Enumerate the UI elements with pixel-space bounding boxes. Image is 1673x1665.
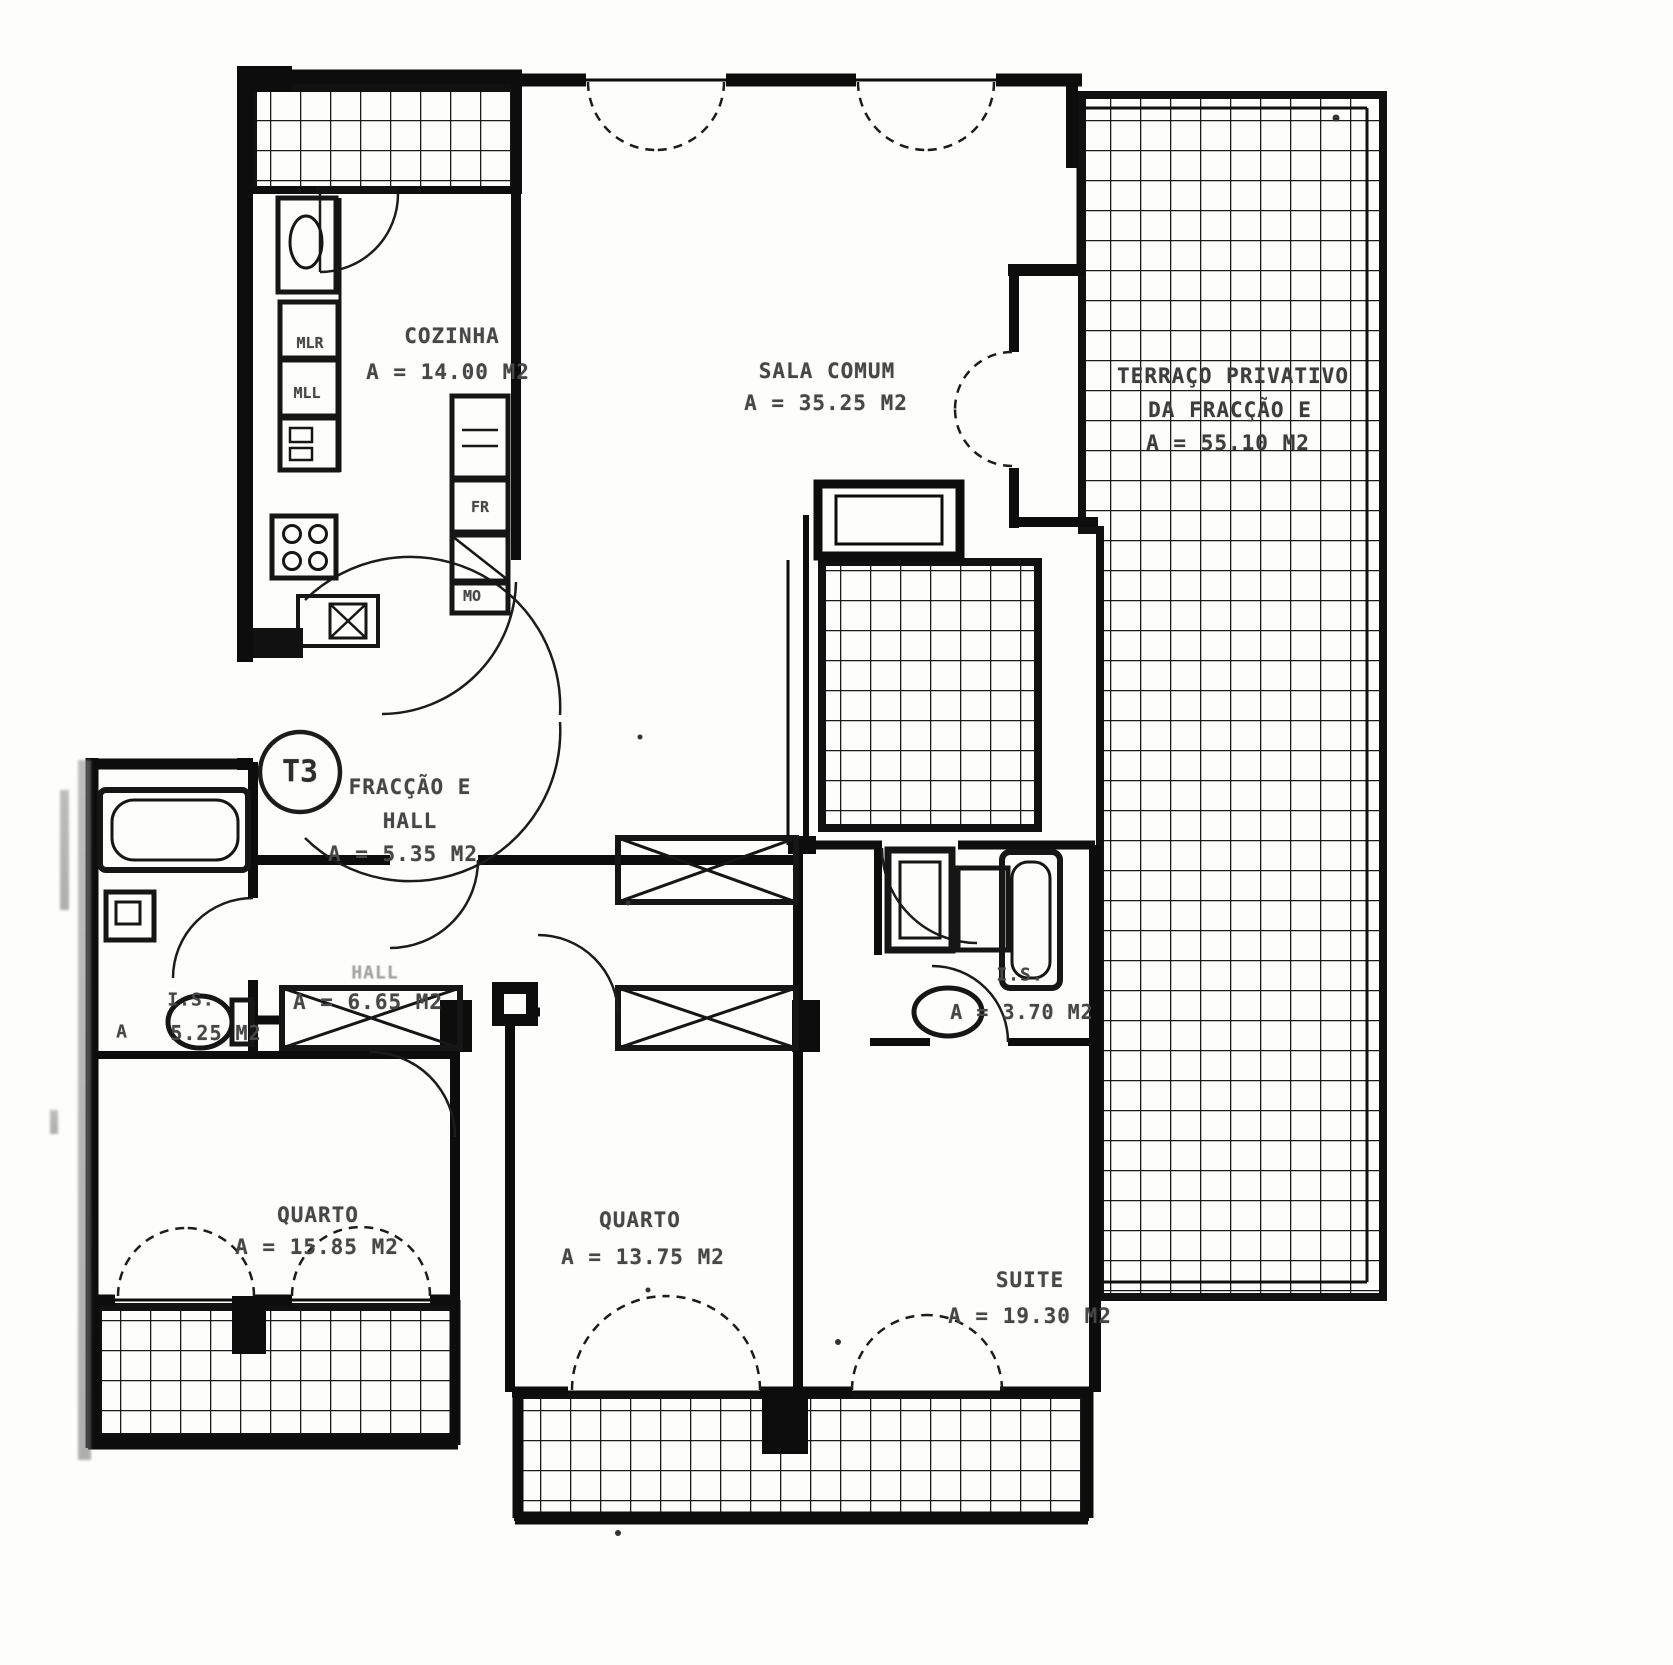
room-area-fraccao-hall: A = 5.35 M2 <box>328 842 478 866</box>
scan-smudge-left-2 <box>60 790 69 910</box>
appliance-label-mlr: MLR <box>296 334 323 352</box>
room-area-prefix-is-left: A <box>116 1022 128 1043</box>
floor-plan-page: COZINHA A = 14.00 M2 SALA COMUM A = 35.2… <box>0 0 1673 1665</box>
room-area-is-suite: A = 3.70 M2 <box>950 1000 1093 1024</box>
appliance-label-mo: MO <box>463 587 481 605</box>
floor-plan-drawing <box>0 0 1673 1665</box>
room-label-is-left: I.S. <box>167 990 214 1011</box>
room-area-hall: A = 6.65 M2 <box>293 990 443 1014</box>
room-label-quarto-1: QUARTO <box>277 1203 359 1227</box>
room-label-quarto-2: QUARTO <box>599 1208 681 1232</box>
room-area-is-left: 5.25 M2 <box>170 1021 261 1045</box>
room-label-is-suite: I.S. <box>996 965 1043 986</box>
room-label-terraco-line1: TERRAÇO PRIVATIVO <box>1117 364 1349 388</box>
room-label-suite: SUITE <box>996 1268 1064 1292</box>
room-area-sala-comum: A = 35.25 M2 <box>744 391 908 415</box>
terrace-grid <box>1082 95 1383 1297</box>
room-label-cozinha: COZINHA <box>404 324 500 348</box>
room-area-quarto-1: A = 15.85 M2 <box>235 1235 399 1259</box>
room-area-terraco: A = 55.10 M2 <box>1146 431 1310 455</box>
unit-type-badge: T3 <box>282 755 318 790</box>
room-area-cozinha: A = 14.00 M2 <box>366 360 530 384</box>
kitchen-balcony-grid <box>253 88 518 190</box>
scan-smudge-left <box>78 760 91 1460</box>
appliance-label-fr: FR <box>471 498 489 516</box>
scan-smudge-left-3 <box>50 1110 58 1134</box>
room-area-suite: A = 19.30 M2 <box>948 1304 1112 1328</box>
room-label-fraccao-line2: HALL <box>383 809 438 833</box>
appliance-label-mll: MLL <box>293 384 320 402</box>
room-label-sala-comum: SALA COMUM <box>759 359 895 383</box>
left-balcony-grid <box>98 1307 455 1437</box>
room-label-fraccao-line1: FRACÇÃO E <box>349 775 472 799</box>
room-label-hall: HALL <box>351 963 398 984</box>
patio-grid <box>822 562 1038 828</box>
room-label-terraco-line2: DA FRACÇÃO E <box>1148 398 1312 422</box>
room-area-quarto-2: A = 13.75 M2 <box>561 1245 725 1269</box>
